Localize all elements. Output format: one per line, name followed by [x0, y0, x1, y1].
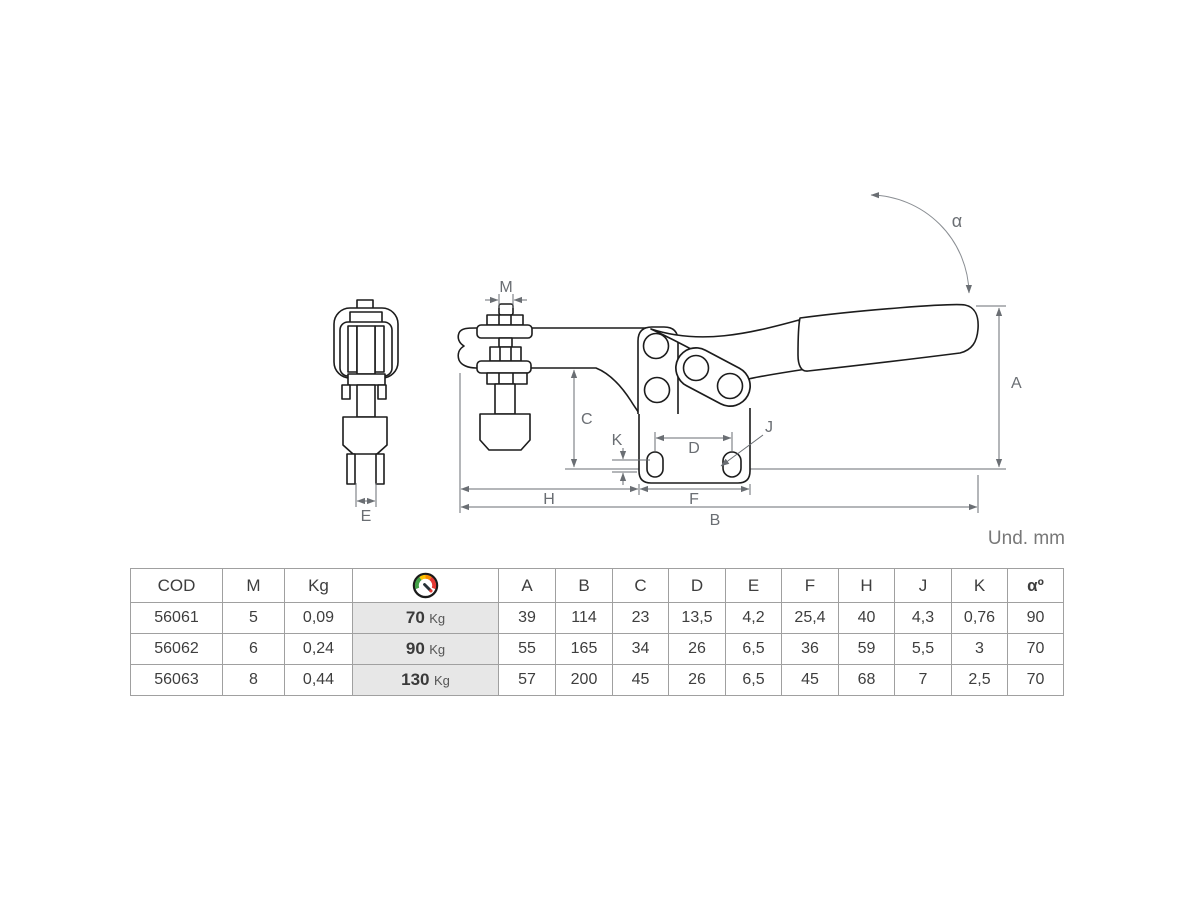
cell-m: 5 [223, 603, 285, 634]
cell-k: 3 [952, 634, 1008, 665]
cell-kg: 0,44 [285, 665, 353, 696]
cell-h: 68 [839, 665, 895, 696]
header-row: COD M Kg [131, 569, 1064, 603]
cell-force: 90 Kg [353, 634, 499, 665]
technical-drawing: E M C K D J [0, 0, 1200, 560]
col-header-b: B [556, 569, 613, 603]
spindle-nut-bottom [487, 373, 527, 384]
cell-force: 130 Kg [353, 665, 499, 696]
cell-k: 2,5 [952, 665, 1008, 696]
cell-d: 26 [669, 634, 726, 665]
col-header-h: H [839, 569, 895, 603]
cell-d: 13,5 [669, 603, 726, 634]
spindle-stud [499, 304, 513, 315]
handle-grip [798, 305, 978, 371]
cell-b: 114 [556, 603, 613, 634]
col-header-j: J [895, 569, 952, 603]
front-nut-bottom [348, 374, 385, 385]
dim-label-K: K [612, 432, 623, 449]
cell-d: 26 [669, 665, 726, 696]
front-foot [343, 417, 387, 454]
cell-e: 6,5 [726, 634, 782, 665]
col-header-cod: COD [131, 569, 223, 603]
spindle-shaft-mid [499, 338, 512, 347]
front-leg-left [347, 454, 355, 484]
cell-c: 34 [613, 634, 669, 665]
cell-c: 45 [613, 665, 669, 696]
link-rivet-right [718, 374, 743, 399]
col-header-f: F [782, 569, 839, 603]
dim-label-B: B [710, 512, 721, 529]
cell-a: 57 [499, 665, 556, 696]
cell-alpha: 70 [1008, 634, 1064, 665]
dim-label-D: D [688, 440, 700, 457]
dim-label-F: F [689, 491, 699, 508]
cell-alpha: 90 [1008, 603, 1064, 634]
front-tab-right [378, 385, 386, 399]
cell-e: 6,5 [726, 665, 782, 696]
spindle-washer-bottom [477, 361, 531, 373]
side-view [458, 304, 978, 483]
spindle-washer-top [477, 325, 532, 338]
rivet-upper [644, 334, 669, 359]
cell-e: 4,2 [726, 603, 782, 634]
col-header-alpha: αº [1008, 569, 1064, 603]
spindle-nut-mid [490, 347, 521, 361]
front-leg-right [376, 454, 384, 484]
front-bar-right [375, 326, 384, 372]
front-spindle-lower [357, 385, 375, 417]
cell-f: 45 [782, 665, 839, 696]
cell-f: 25,4 [782, 603, 839, 634]
units-label: Und. mm [860, 528, 1065, 550]
cell-b: 200 [556, 665, 613, 696]
dim-label-H: H [543, 491, 555, 508]
force-gauge-icon [412, 572, 439, 599]
dim-label-M: M [499, 279, 512, 296]
cell-j: 4,3 [895, 603, 952, 634]
spindle-rod [495, 384, 515, 414]
table-row: 56061 5 0,09 70 Kg 39 114 23 13,5 4,2 25… [131, 603, 1064, 634]
angle-arc [871, 195, 969, 293]
cell-a: 39 [499, 603, 556, 634]
table-row: 56062 6 0,24 90 Kg 55 165 34 26 6,5 36 5… [131, 634, 1064, 665]
cell-force: 70 Kg [353, 603, 499, 634]
front-bar-left [348, 326, 357, 372]
cell-h: 40 [839, 603, 895, 634]
cell-kg: 0,09 [285, 603, 353, 634]
front-view [334, 300, 398, 484]
datasheet-page: E M C K D J [0, 0, 1200, 900]
col-header-e: E [726, 569, 782, 603]
cell-f: 36 [782, 634, 839, 665]
cell-cod: 56062 [131, 634, 223, 665]
col-header-k: K [952, 569, 1008, 603]
dim-label-alpha: α [952, 211, 962, 231]
cell-a: 55 [499, 634, 556, 665]
spec-table: COD M Kg [130, 568, 1064, 696]
cell-alpha: 70 [1008, 665, 1064, 696]
rivet-lower [645, 378, 670, 403]
cell-j: 5,5 [895, 634, 952, 665]
dim-label-A: A [1011, 375, 1022, 392]
col-header-d: D [669, 569, 726, 603]
mounting-slot-right [723, 452, 741, 477]
spindle-assembly [477, 304, 532, 450]
table-row: 56063 8 0,44 130 Kg 57 200 45 26 6,5 45 … [131, 665, 1064, 696]
cell-k: 0,76 [952, 603, 1008, 634]
col-header-m: M [223, 569, 285, 603]
col-header-a: A [499, 569, 556, 603]
front-spindle-upper [357, 326, 375, 374]
spindle-nut-top [487, 315, 523, 325]
dim-label-E: E [361, 508, 372, 525]
front-tab-left [342, 385, 350, 399]
link-rivet-left [684, 356, 709, 381]
mounting-slot-left [647, 452, 663, 477]
cell-m: 8 [223, 665, 285, 696]
cell-c: 23 [613, 603, 669, 634]
cell-j: 7 [895, 665, 952, 696]
dim-label-J: J [765, 419, 773, 436]
cell-h: 59 [839, 634, 895, 665]
col-header-force [353, 569, 499, 603]
cell-kg: 0,24 [285, 634, 353, 665]
cell-cod: 56061 [131, 603, 223, 634]
dim-label-C: C [581, 411, 593, 428]
rubber-foot [480, 414, 530, 450]
col-header-c: C [613, 569, 669, 603]
cell-b: 165 [556, 634, 613, 665]
col-header-kg: Kg [285, 569, 353, 603]
cell-cod: 56063 [131, 665, 223, 696]
cell-m: 6 [223, 634, 285, 665]
